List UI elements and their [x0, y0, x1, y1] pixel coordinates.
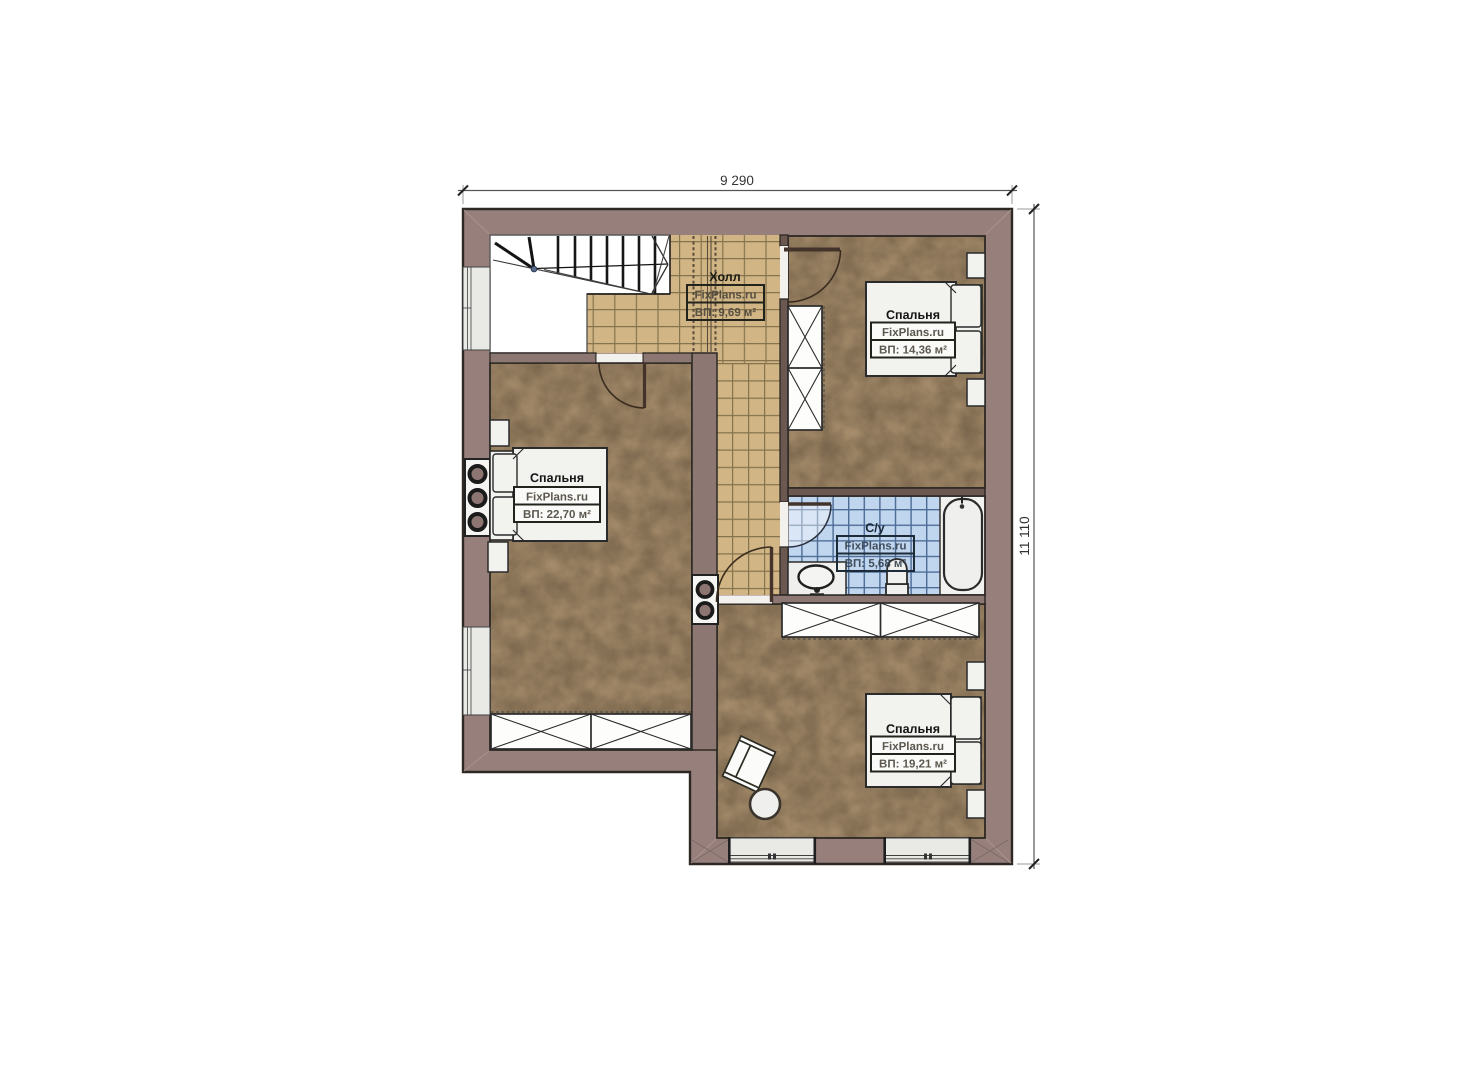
svg-text:ВП: 9,69 м²: ВП: 9,69 м²	[695, 307, 757, 319]
svg-text:9 290: 9 290	[720, 173, 754, 188]
svg-text:FixPlans.ru: FixPlans.ru	[526, 492, 588, 504]
svg-text:FixPlans.ru: FixPlans.ru	[695, 290, 757, 302]
svg-text:ВП: 5,68 м²: ВП: 5,68 м²	[845, 558, 907, 570]
svg-text:Спальня: Спальня	[530, 471, 584, 485]
svg-text:ВП: 22,70 м²: ВП: 22,70 м²	[523, 509, 591, 521]
svg-text:С/у: С/у	[865, 521, 885, 535]
svg-text:FixPlans.ru: FixPlans.ru	[882, 327, 944, 339]
svg-text:Спальня: Спальня	[886, 308, 940, 322]
svg-text:FixPlans.ru: FixPlans.ru	[845, 541, 907, 553]
svg-text:ВП: 19,21 м²: ВП: 19,21 м²	[879, 759, 947, 771]
svg-text:Холл: Холл	[709, 270, 740, 284]
svg-text:11 110: 11 110	[1017, 516, 1032, 555]
svg-text:ВП: 14,36 м²: ВП: 14,36 м²	[879, 345, 947, 357]
svg-text:FixPlans.ru: FixPlans.ru	[882, 741, 944, 753]
svg-text:Спальня: Спальня	[886, 722, 940, 736]
